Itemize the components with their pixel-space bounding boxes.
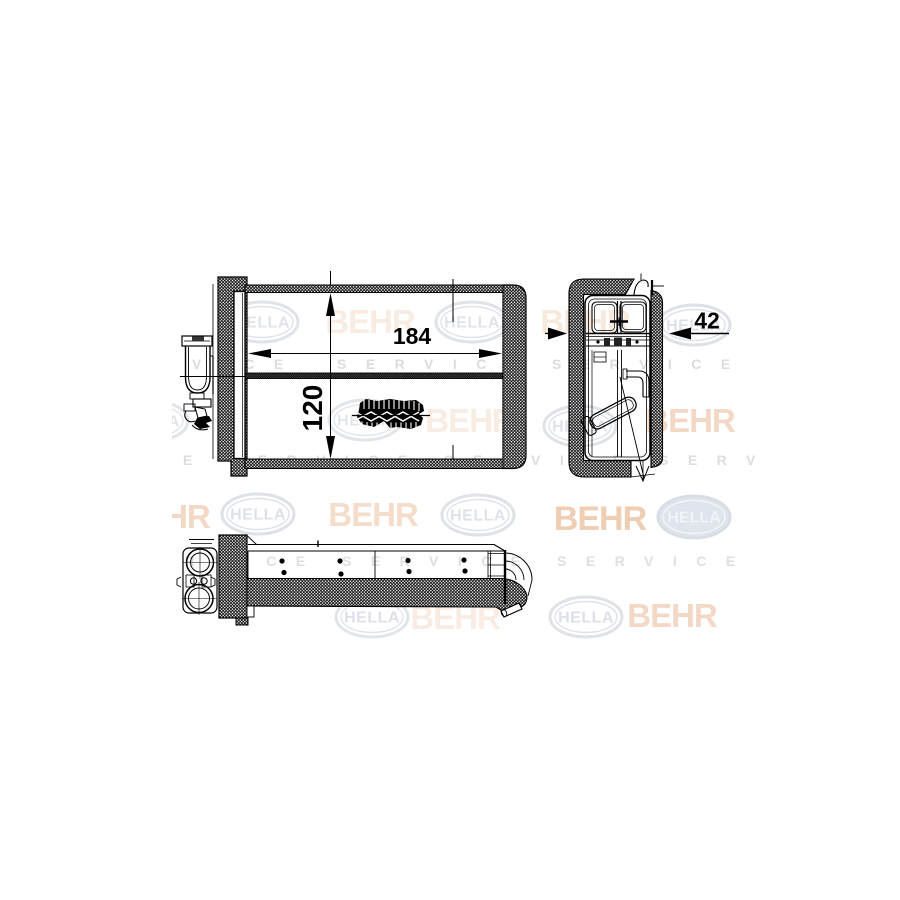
svg-text:HELLA: HELLA [450,508,506,525]
svg-text:BEHR: BEHR [627,597,718,634]
svg-text:SERVICE: SERVICE [105,356,303,372]
svg-text:HELLA: HELLA [444,315,500,332]
svg-text:120: 120 [297,385,328,432]
svg-text:HELLA: HELLA [124,414,180,431]
svg-text:SERVICE: SERVICE [557,553,755,569]
svg-text:BEHR: BEHR [554,500,647,538]
svg-text:184: 184 [393,323,432,349]
svg-text:42: 42 [694,308,720,334]
svg-text:BEHR: BEHR [425,402,516,439]
svg-text:HELLA: HELLA [344,610,400,627]
svg-text:SERVICE: SERVICE [14,452,212,468]
svg-text:BEHR: BEHR [120,498,211,535]
svg-text:HELLA: HELLA [558,610,614,627]
svg-text:SERVICE: SERVICE [342,553,540,569]
svg-text:BEHR: BEHR [328,496,419,533]
svg-text:HELLA: HELLA [230,507,286,524]
svg-text:SERVICE: SERVICE [659,452,857,468]
svg-text:HELLA: HELLA [667,510,721,527]
